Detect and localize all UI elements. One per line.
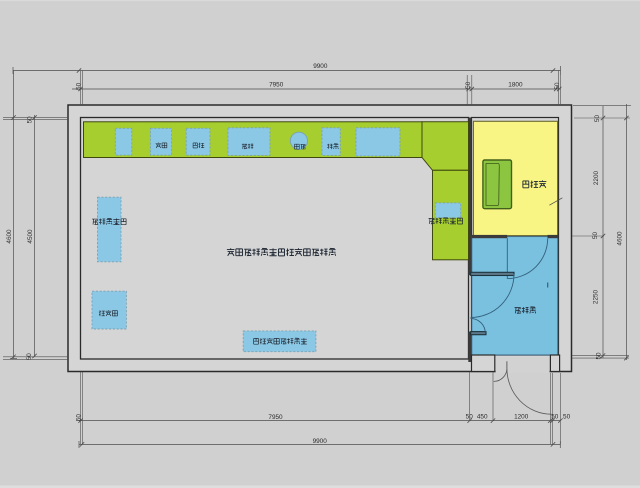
svg-text:9900: 9900 <box>313 438 328 445</box>
svg-text:50: 50 <box>592 232 599 240</box>
svg-text:1800: 1800 <box>508 82 523 89</box>
svg-text:450: 450 <box>477 413 488 420</box>
svg-text:50: 50 <box>465 81 472 89</box>
svg-text:4600: 4600 <box>617 231 624 246</box>
svg-text:50: 50 <box>554 82 561 90</box>
svg-text:7950: 7950 <box>269 82 284 89</box>
svg-text:50: 50 <box>76 82 83 90</box>
svg-text:7950: 7950 <box>268 414 283 421</box>
svg-text:2200: 2200 <box>593 170 600 185</box>
svg-text:50: 50 <box>594 115 601 123</box>
svg-text:50: 50 <box>76 414 83 422</box>
svg-text:50: 50 <box>563 413 571 420</box>
svg-text:50: 50 <box>466 413 474 420</box>
svg-text:4500: 4500 <box>27 229 34 244</box>
svg-text:1200: 1200 <box>514 413 529 420</box>
svg-text:9900: 9900 <box>313 63 328 70</box>
svg-text:50: 50 <box>595 352 602 360</box>
svg-text:50: 50 <box>551 413 559 420</box>
svg-text:2250: 2250 <box>593 289 600 304</box>
svg-text:4600: 4600 <box>6 229 13 244</box>
